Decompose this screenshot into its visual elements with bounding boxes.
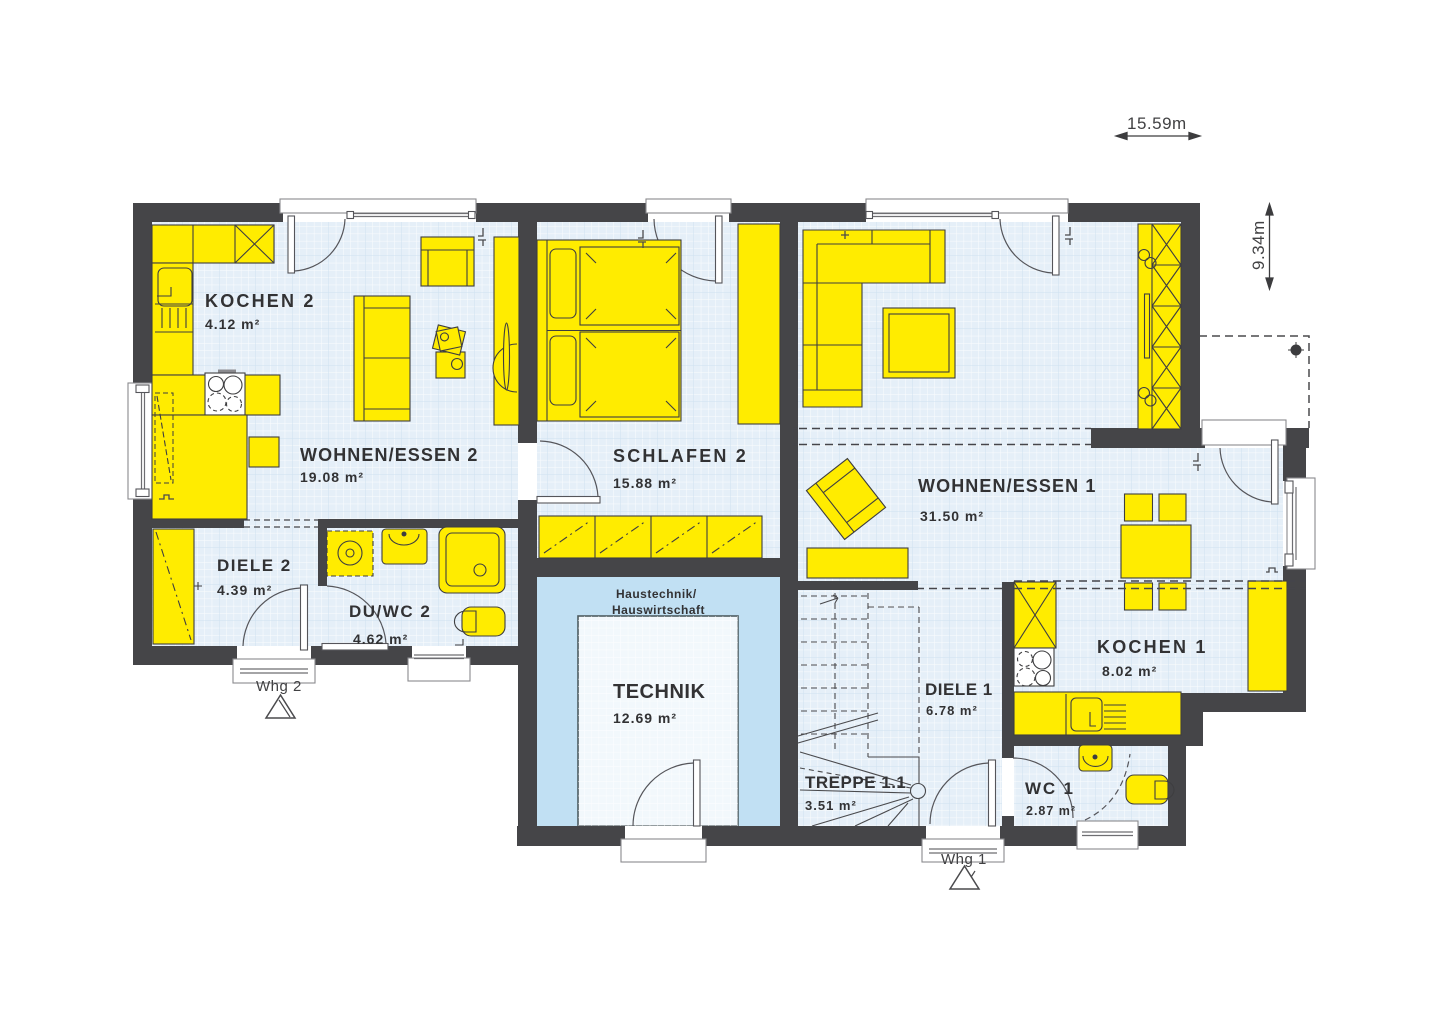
svg-text:4.12 m²: 4.12 m² — [205, 316, 260, 332]
svg-text:DU/WC 2: DU/WC 2 — [349, 602, 431, 621]
svg-text:19.08 m²: 19.08 m² — [300, 469, 364, 485]
svg-text:15.59m: 15.59m — [1127, 114, 1187, 133]
svg-text:Whg 2: Whg 2 — [256, 678, 302, 695]
svg-text:DIELE 2: DIELE 2 — [217, 556, 292, 575]
svg-text:SCHLAFEN 2: SCHLAFEN 2 — [613, 446, 748, 466]
svg-text:Hauswirtschaft: Hauswirtschaft — [612, 603, 705, 617]
svg-text:2.87 m²: 2.87 m² — [1026, 804, 1076, 818]
svg-text:8.02 m²: 8.02 m² — [1102, 663, 1157, 679]
svg-text:4.39 m²: 4.39 m² — [217, 582, 272, 598]
svg-text:12.69 m²: 12.69 m² — [613, 710, 677, 726]
svg-text:WC 1: WC 1 — [1025, 779, 1075, 798]
svg-text:31.50 m²: 31.50 m² — [920, 508, 984, 524]
svg-text:9.34m: 9.34m — [1249, 220, 1268, 270]
svg-text:Haustechnik/: Haustechnik/ — [616, 587, 697, 601]
svg-text:TREPPE 1.1: TREPPE 1.1 — [805, 773, 906, 792]
svg-text:WOHNEN/ESSEN 2: WOHNEN/ESSEN 2 — [300, 445, 478, 465]
svg-text:15.88 m²: 15.88 m² — [613, 475, 677, 491]
svg-text:WOHNEN/ESSEN 1: WOHNEN/ESSEN 1 — [918, 476, 1096, 496]
svg-text:DIELE 1: DIELE 1 — [925, 680, 993, 699]
svg-text:6.78 m²: 6.78 m² — [926, 703, 978, 718]
svg-text:4.62 m²: 4.62 m² — [353, 631, 408, 647]
svg-text:TECHNIK: TECHNIK — [613, 681, 705, 703]
svg-text:Whg 1: Whg 1 — [941, 851, 987, 868]
svg-text:KOCHEN 2: KOCHEN 2 — [205, 291, 316, 311]
svg-text:KOCHEN 1: KOCHEN 1 — [1097, 637, 1208, 657]
svg-text:3.51 m²: 3.51 m² — [805, 798, 857, 813]
